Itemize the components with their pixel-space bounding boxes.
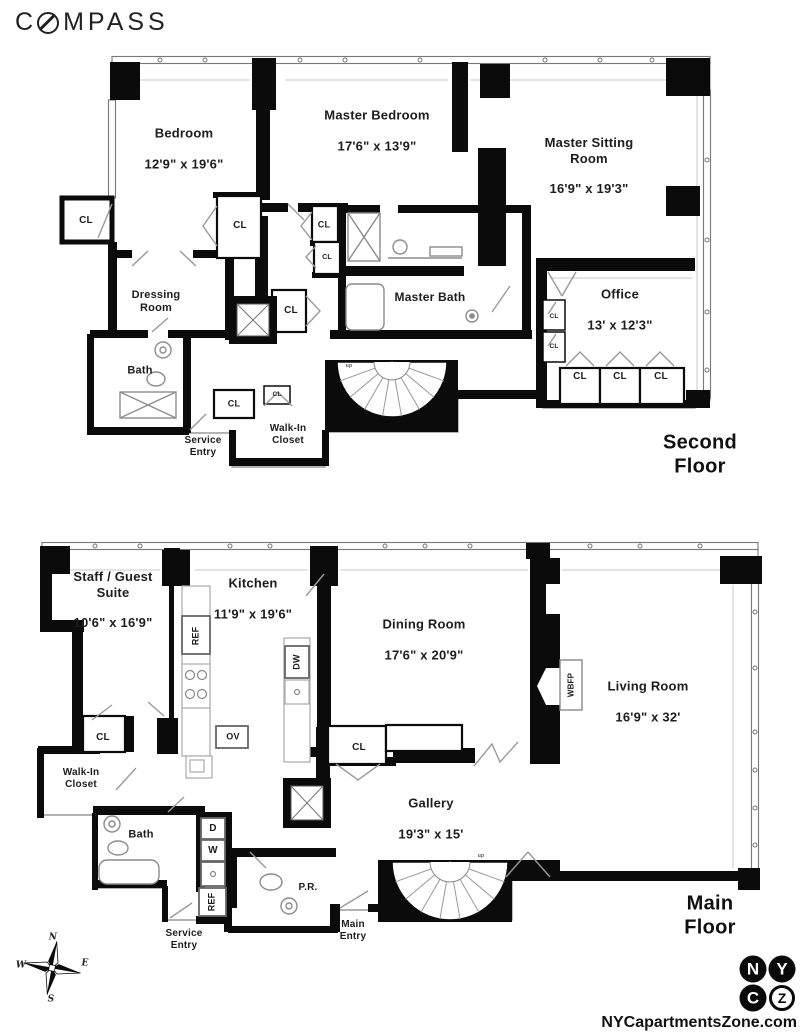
closet-label: CL xyxy=(96,732,110,744)
compass-rose-icon xyxy=(19,936,85,999)
second-floor-title: Second Floor xyxy=(650,431,750,478)
room-label-master-bedroom: Master Bedroom 17'6" x 13'9" xyxy=(324,93,429,170)
closet-label: CL xyxy=(549,343,558,351)
nycz-logo-circle-n: N xyxy=(740,956,767,983)
nycz-logo-circle-y: Y xyxy=(769,956,796,983)
compass-rose-w: W xyxy=(16,961,26,972)
closet-label: CL xyxy=(79,215,93,227)
appliance-label-dryer: D xyxy=(209,823,216,835)
room-label-service-entry-main: Service Entry xyxy=(166,928,203,952)
room-label-service-entry-2f: Service Entry xyxy=(185,435,222,459)
room-label-bath-2f: Bath xyxy=(127,365,152,378)
room-label-master-bath: Master Bath xyxy=(395,290,466,304)
nycz-logo-circle-z: Z xyxy=(769,985,795,1011)
appliance-label-washer: W xyxy=(208,845,218,857)
room-label-gallery: Gallery 19'3" x 15' xyxy=(398,781,463,858)
elevator-main-floor xyxy=(283,778,331,828)
main-floor-title: Main Floor xyxy=(665,892,755,939)
appliance-label-ref-service: REF xyxy=(207,893,218,912)
stairs-up-label: up xyxy=(346,364,353,370)
closet-label: CL xyxy=(233,220,247,232)
room-label-staff-guest-suite: Staff / Guest Suite 10'6" x 16'9" xyxy=(73,554,152,646)
closet-label: CL xyxy=(654,371,668,383)
fireplace-label-wbfp: WBFP xyxy=(566,673,575,697)
closet-label: CL xyxy=(284,305,298,317)
room-label-bedroom: Bedroom 12'9" x 19'6" xyxy=(145,111,224,188)
room-label-bath-main: Bath xyxy=(128,829,153,842)
room-label-kitchen: Kitchen 11'9" x 19'6" xyxy=(214,561,292,638)
appliance-label-dw: DW xyxy=(292,654,303,669)
room-label-office: Office 13' x 12'3" xyxy=(587,272,652,349)
room-label-dressing-room: Dressing Room xyxy=(132,289,181,315)
room-label-walk-in-closet-main: Walk-In Closet xyxy=(63,767,100,791)
floorplan-page: { "brand": {"parts": ["C", "MPASS"]}, "l… xyxy=(0,0,800,1036)
room-label-walk-in-closet-2f: Walk-In Closet xyxy=(270,423,307,447)
appliance-label-ov: OV xyxy=(226,732,239,743)
site-url: NYCapartmentsZone.com xyxy=(601,1014,797,1032)
closet-label: CL xyxy=(549,313,558,321)
room-label-powder-room: P.R. xyxy=(299,882,318,894)
closet-label: CL xyxy=(318,220,330,231)
staircase-second-floor xyxy=(325,360,458,432)
staircase-main-floor xyxy=(378,860,512,922)
closet-label: CL xyxy=(613,371,627,383)
closet-label: CL xyxy=(352,742,366,754)
closet-label: CL xyxy=(272,391,281,399)
room-label-main-entry: Main Entry xyxy=(340,919,367,943)
room-label-master-sitting-room: Master Sitting Room 16'9" x 19'3" xyxy=(545,120,634,212)
appliance-label-ref-kitchen: REF xyxy=(191,627,202,646)
stairs-up-label: up xyxy=(478,854,485,860)
closet-label: CL xyxy=(573,371,587,383)
closet-label: CL xyxy=(228,399,240,410)
nycz-logo-circle-c: C xyxy=(740,985,767,1012)
compass-rose-n: N xyxy=(49,933,57,944)
elevator-second-floor xyxy=(229,296,277,344)
compass-rose-s: S xyxy=(48,995,55,1006)
room-label-dining-room: Dining Room 17'6" x 20'9" xyxy=(382,602,465,679)
room-label-living-room: Living Room 16'9" x 32' xyxy=(608,664,689,741)
closet-label: CL xyxy=(322,254,332,262)
laundry-sink xyxy=(201,862,225,886)
compass-rose-e: E xyxy=(81,959,88,970)
